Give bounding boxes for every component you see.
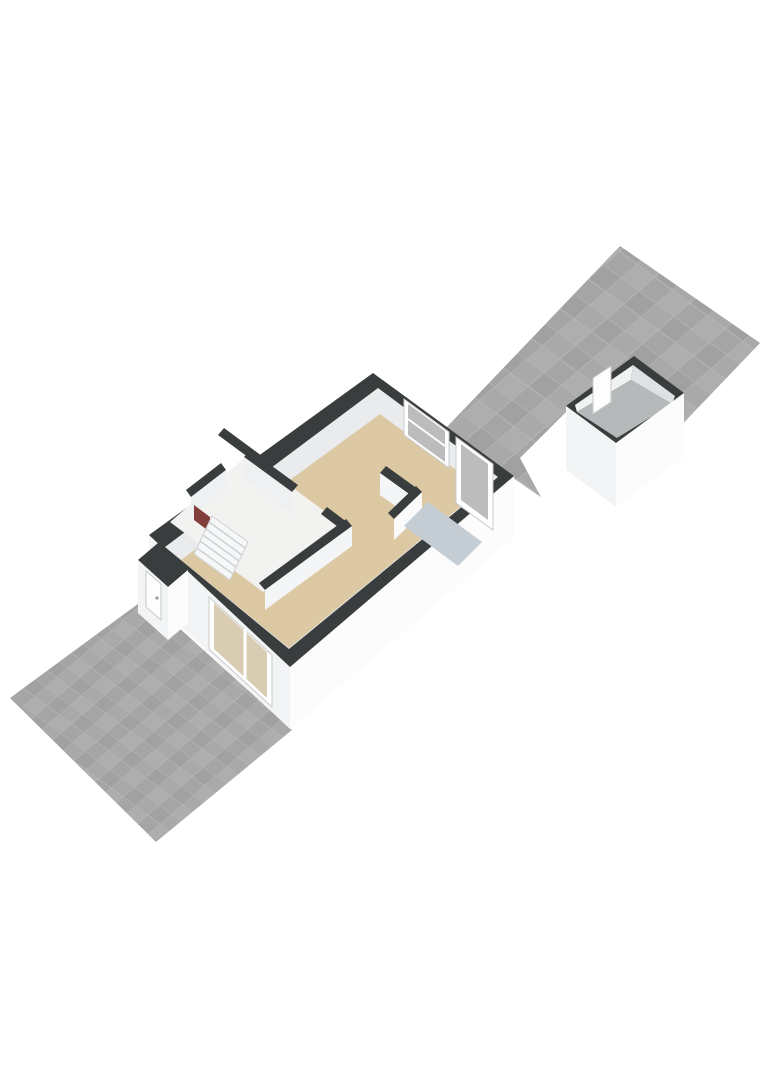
closet-wall-band-a [218,428,262,463]
floorplan-3d-canvas [0,0,768,1086]
floorplan-3d-stage [0,0,768,1086]
scene-root [10,246,760,842]
front-door-handle [155,596,158,599]
